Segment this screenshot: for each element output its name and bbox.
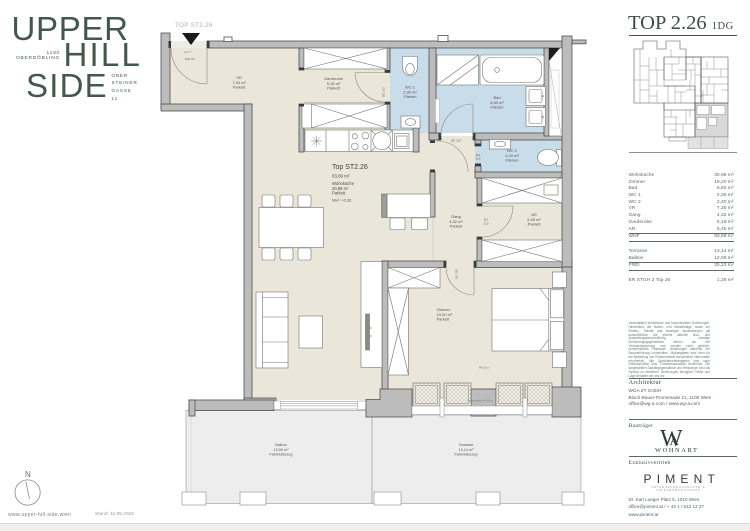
svg-text:12,09 m²: 12,09 m² xyxy=(274,448,290,452)
svg-text:TOP ST2.26: TOP ST2.26 xyxy=(175,22,213,29)
svg-text:Parkett: Parkett xyxy=(327,86,341,91)
svg-text:N: N xyxy=(25,470,31,479)
svg-text:□⌀ □°: □⌀ □° xyxy=(184,50,192,54)
svg-text:Parapethöhe H=1,29 m: Parapethöhe H=1,29 m xyxy=(468,400,493,403)
svg-text:83,69 m²: 83,69 m² xyxy=(332,174,350,179)
svg-text:210: 210 xyxy=(476,157,481,161)
svg-text:Niv= +2,32: Niv= +2,32 xyxy=(332,198,352,203)
svg-text:H=2,10m: H=2,10m xyxy=(479,366,490,370)
svg-text:Terrasse: Terrasse xyxy=(459,443,474,447)
svg-text:Parkett: Parkett xyxy=(528,222,542,227)
svg-text:E02 36: E02 36 xyxy=(185,57,195,61)
svg-text:Fliesen: Fliesen xyxy=(404,94,417,99)
svg-text:Balkon: Balkon xyxy=(275,443,287,447)
svg-text:Parkett: Parkett xyxy=(332,190,346,195)
svg-text:Fliesen: Fliesen xyxy=(506,158,519,163)
svg-text:BG 212: BG 212 xyxy=(382,87,386,97)
svg-text:Parkett: Parkett xyxy=(437,317,451,322)
svg-text:Parkett: Parkett xyxy=(450,224,464,229)
svg-text:Fliesen: Fliesen xyxy=(491,105,504,110)
svg-text:BG 210: BG 210 xyxy=(455,269,459,279)
svg-text:210: 210 xyxy=(484,222,489,226)
svg-text:13,14 m²: 13,14 m² xyxy=(459,448,475,452)
svg-text:Fahrnisbezug: Fahrnisbezug xyxy=(454,452,477,456)
svg-text:Parkett: Parkett xyxy=(233,85,247,90)
svg-text:Top ST2.26: Top ST2.26 xyxy=(332,164,368,171)
svg-text:BG 210: BG 210 xyxy=(451,139,461,143)
svg-text:Fahrnisbezug: Fahrnisbezug xyxy=(269,452,292,456)
